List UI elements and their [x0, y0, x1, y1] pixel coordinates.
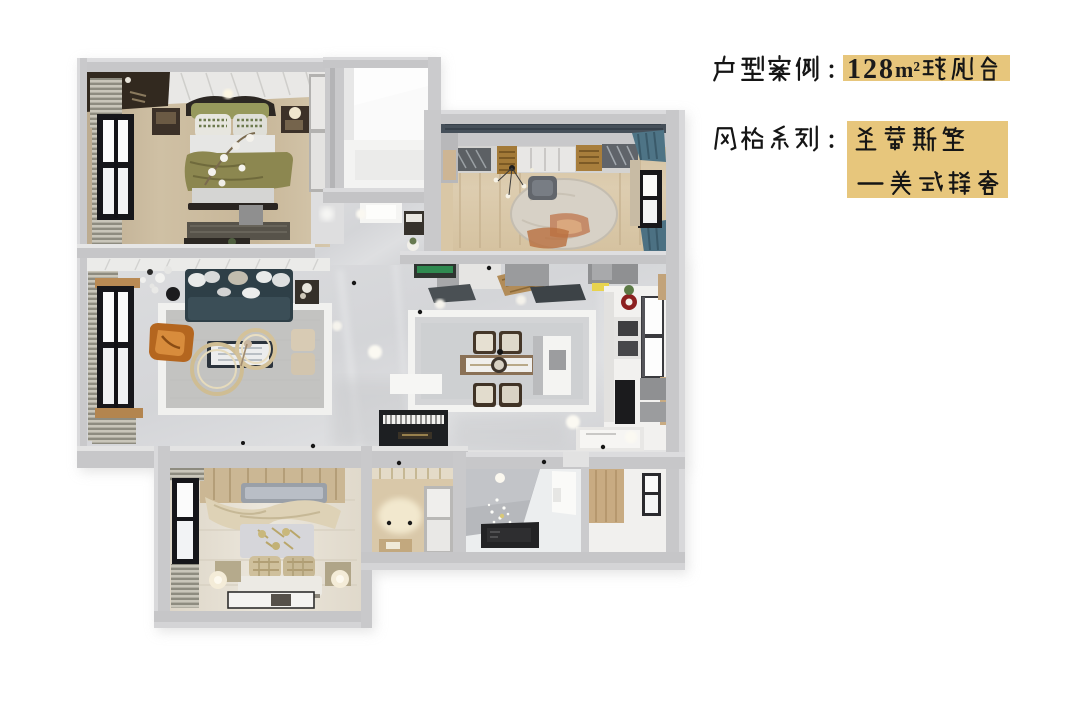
svg-text:m²: m²: [895, 57, 920, 82]
svg-text:128: 128: [847, 54, 895, 85]
